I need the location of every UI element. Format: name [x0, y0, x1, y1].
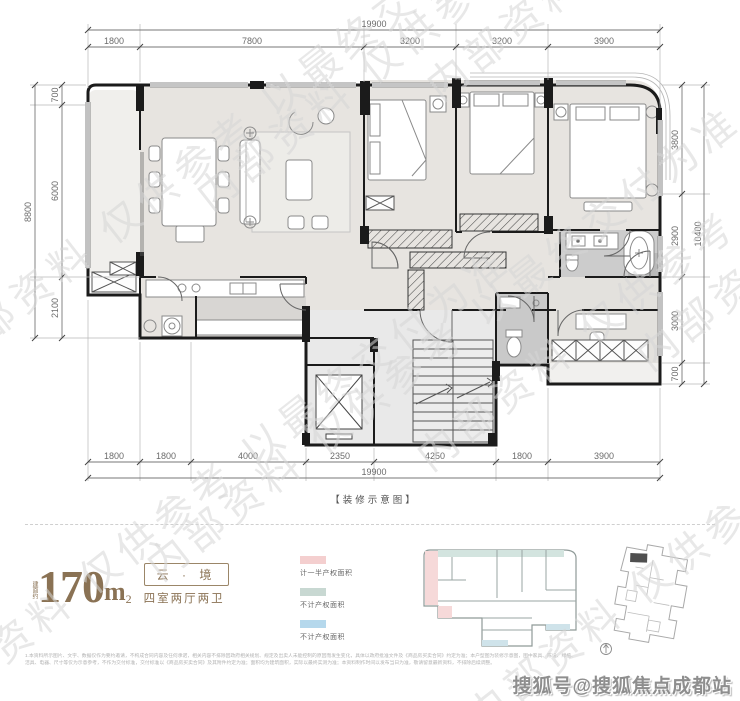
dim-right-3: 3000	[670, 311, 680, 331]
stairs	[413, 340, 493, 442]
unit-layout-label: 四室两厅两卫	[144, 590, 230, 606]
legend-swatch-pink	[300, 556, 326, 564]
dim-left-2: 6000	[50, 181, 60, 201]
dim-right-total: 10400	[693, 221, 703, 246]
bed-3	[457, 92, 547, 174]
disclaimer-text: 1.本资料所示图片、文字、数据仅作为要约邀请，不构成合同内容及任何承诺，相关内容…	[25, 654, 715, 667]
dashed-divider	[25, 524, 715, 525]
legend-swatch-blue	[300, 620, 326, 628]
mini-key-plan	[418, 540, 586, 658]
dim-right-2: 2900	[670, 226, 680, 246]
dim-right-4: 700	[670, 366, 680, 381]
legend-label: 计一半产权面积	[300, 568, 353, 578]
elevator	[316, 375, 362, 439]
area-prefix-label: 建面约	[30, 581, 37, 599]
compass-icon	[601, 644, 612, 655]
dim-bottom-4: 2350	[330, 451, 350, 461]
dim-left-1: 700	[50, 87, 60, 102]
dim-left-total: 8800	[23, 202, 33, 222]
legend-item: 不计产权面积	[300, 588, 353, 610]
sohu-watermark: 搜狐号@搜狐焦点成都站	[512, 671, 732, 698]
dim-top-2: 7800	[242, 36, 262, 46]
dim-left-3: 2100	[50, 298, 60, 318]
site-plate-diagram	[590, 536, 712, 664]
dim-bottom-3: 4000	[238, 451, 258, 461]
disclaimer-line-2: 洁具、电器、尺寸等仅为示意参考，不作为交付标准，交付标准以《商品房买卖合同》及其…	[25, 661, 715, 668]
legend-item: 不计产权面积	[300, 620, 353, 642]
dim-top-5: 3900	[594, 36, 614, 46]
unit-name-badge: 云 · 境	[144, 563, 230, 586]
dim-top-3: 3200	[400, 36, 420, 46]
dim-bottom-6: 1800	[512, 451, 532, 461]
master-bed	[554, 104, 658, 211]
legend-item: 计一半产权面积	[300, 556, 353, 578]
plan-caption: 【装修示意图】	[330, 494, 418, 506]
dim-right-1: 3800	[670, 130, 680, 150]
floor-plan-svg: 19900 1800 7800 3200 3200 3900 8800 700 …	[0, 0, 740, 524]
dim-bottom-1: 1800	[104, 451, 124, 461]
dim-top-1: 1800	[104, 36, 124, 46]
area-legend: 计一半产权面积 不计产权面积 不计产权面积	[300, 556, 353, 652]
unit-info-block: 建面约 170m2 云 · 境 四室两厅两卫	[30, 563, 229, 607]
legend-swatch-green	[300, 588, 326, 596]
dim-bottom-2: 1800	[156, 451, 176, 461]
legend-label: 不计产权面积	[300, 600, 353, 610]
dim-bottom-5: 4250	[425, 451, 445, 461]
dim-bottom-total: 19900	[361, 467, 386, 477]
dim-bottom-7: 3900	[594, 451, 614, 461]
unit-area-exponent: 2	[126, 592, 132, 607]
dim-top-4: 3200	[492, 36, 512, 46]
unit-area-unit: m	[104, 577, 126, 607]
floorplan-page: { "watermark": { "text": "内部资料 仅供参考 以最终交…	[0, 0, 740, 701]
unit-area-value: 170	[38, 567, 104, 607]
dim-top-total: 19900	[361, 19, 386, 29]
legend-label: 不计产权面积	[300, 632, 353, 642]
